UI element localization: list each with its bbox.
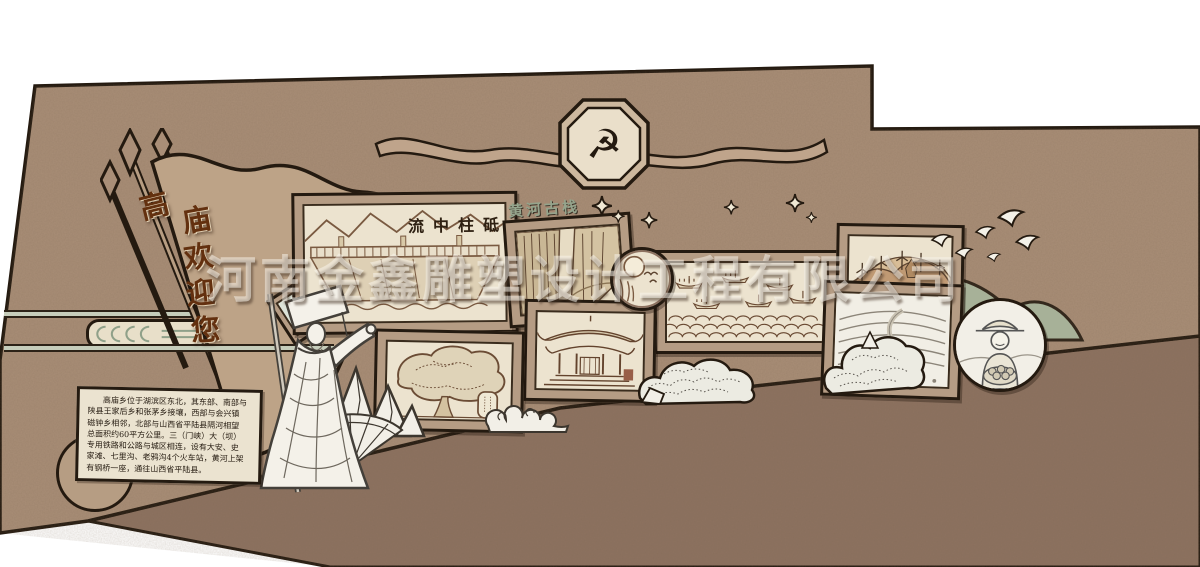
hammer-sickle-icon: ☭ [586, 122, 622, 168]
party-emblem: ☭ [554, 94, 654, 194]
shrub-rock-sculpture [634, 348, 762, 406]
cloud-scroll-sculpture [480, 398, 572, 434]
pennant-char: 您 [190, 315, 221, 346]
farmer-portrait-medallion [953, 298, 1047, 392]
shrub-tree-sculpture [818, 326, 930, 398]
pennant-char: 庙 [180, 204, 214, 238]
red-seal [624, 369, 634, 380]
cultural-wall-design: 高 庙 欢 迎 您 ☭ [0, 0, 1200, 567]
dam-calligraphy-caption: 流中柱砥 [408, 211, 508, 237]
township-intro-box: 高庙乡位于湖滨区东北，其东部、南部与 陕县王家后乡和张茅乡接壤，西部与会兴镇 磁… [75, 386, 263, 485]
temple-pavilion-engraving [534, 310, 645, 392]
sparkle-stars [586, 192, 826, 232]
company-watermark: 河南金鑫雕塑设计工程有限公司 [206, 240, 962, 312]
